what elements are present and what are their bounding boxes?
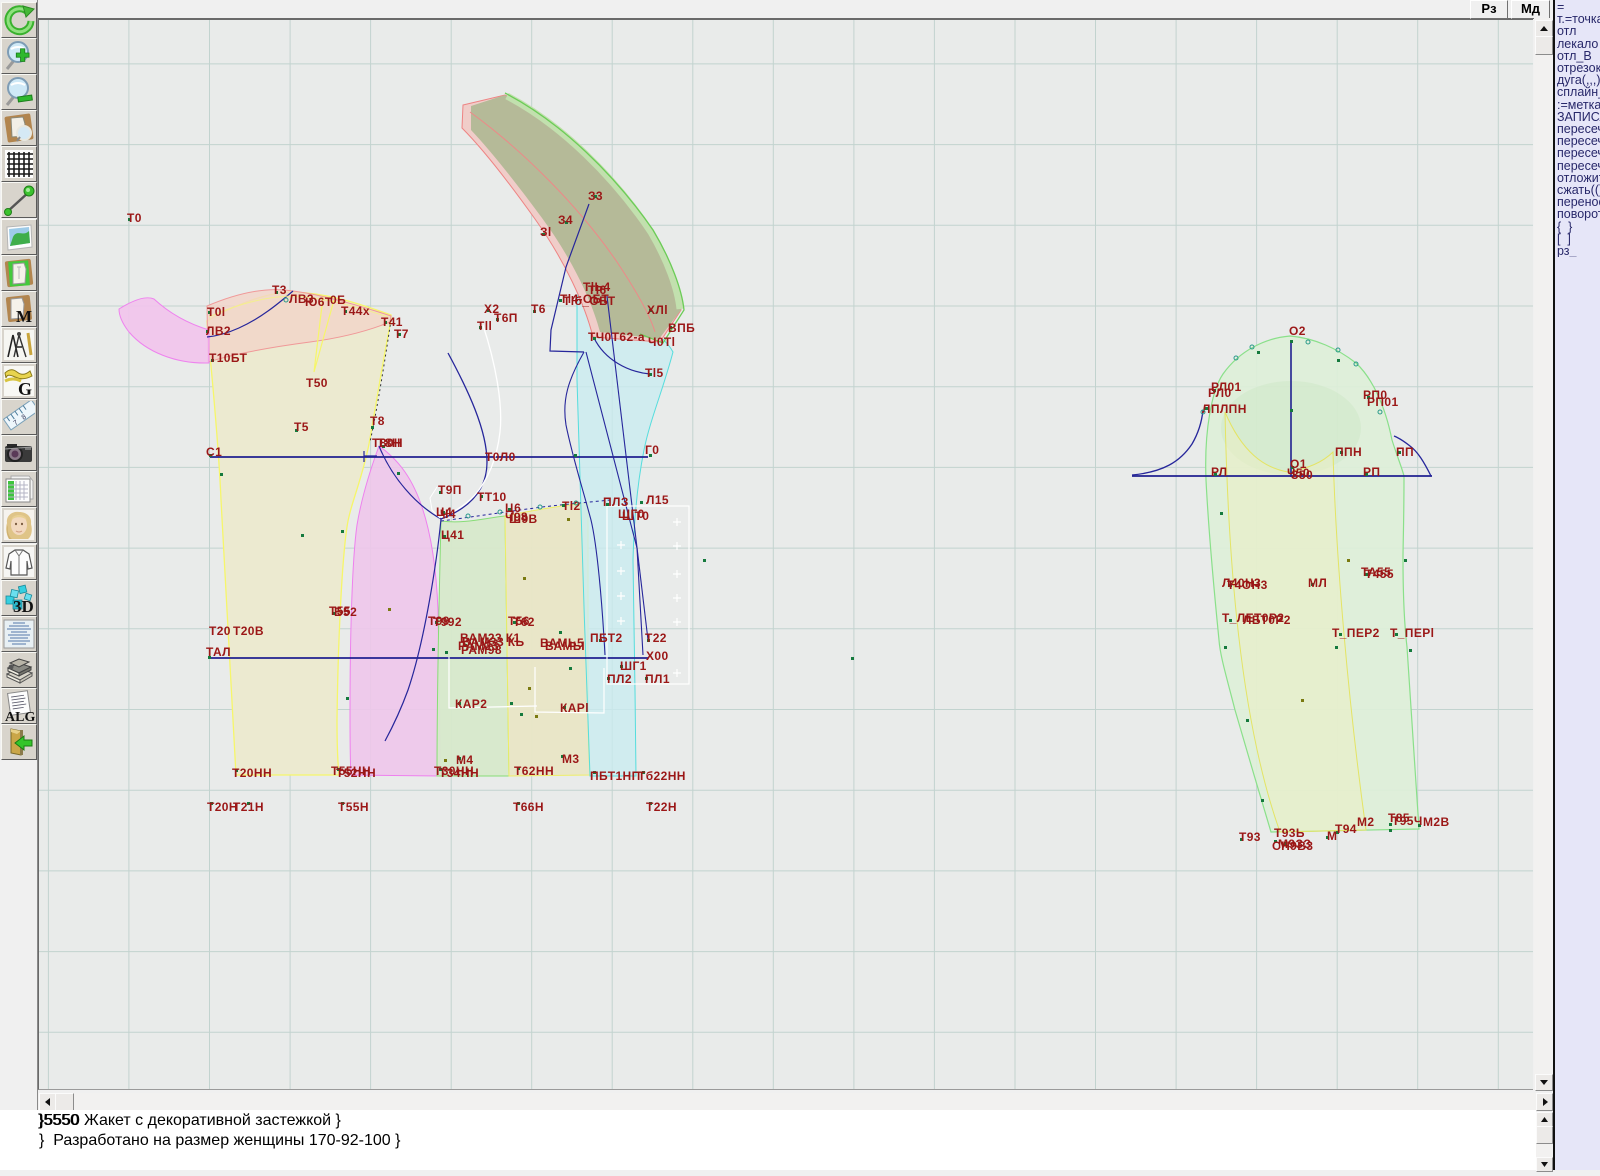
svg-text:КАРl: КАРl [560,701,589,715]
svg-text:СН9В3: СН9В3 [1272,839,1313,853]
svg-text:РЛ0: РЛ0 [1208,386,1232,400]
svg-text:Т52НН: Т52НН [336,766,376,780]
svg-text:ШТ0: ШТ0 [622,509,649,523]
svg-text:З50: З50 [1291,468,1313,482]
svg-text:З3: З3 [588,189,603,203]
svg-text:Т7: Т7 [394,327,409,341]
svg-text:ПБТ2: ПБТ2 [590,631,623,645]
svg-text:Т20НН: Т20НН [232,766,272,780]
svg-text:Б52: Б52 [334,605,357,619]
svg-text:РЛ: РЛ [1211,465,1227,479]
svg-text:Т0Л0: Т0Л0 [485,450,516,464]
svg-text:ВАМЫ: ВАМЫ [545,639,585,653]
svg-text:G: G [18,379,32,397]
svg-text:Т_ПЕР2: Т_ПЕР2 [1332,626,1380,640]
svg-text:Т20: Т20 [209,624,231,638]
svg-text:Тll: Тll [477,319,492,333]
svg-text:М2: М2 [1357,815,1374,829]
svg-text:Ч4: Ч4 [440,507,456,521]
svg-text:ЛВ2: ЛВ2 [206,324,231,338]
svg-text:Г0: Г0 [645,443,659,457]
svg-text:Т22Н: Т22Н [646,800,677,814]
svg-text:Тб22НН: Тб22НН [638,769,686,783]
svg-text:Т95Ч: Т95Ч [1392,814,1423,828]
svg-text:Т6П: Т6П [494,311,518,325]
svg-text:Т4ОН3: Т4ОН3 [1227,578,1268,592]
svg-text:Т55Н: Т55Н [338,800,369,814]
svg-text:ТЧ0Т62-а: ТЧ0Т62-а [588,330,645,344]
svg-text:Т50: Т50 [306,376,328,390]
svg-text:Т3: Т3 [272,283,287,297]
svg-text:КАР2: КАР2 [455,697,487,711]
svg-text:Т62НН: Т62НН [514,764,554,778]
svg-text:3D: 3D [13,597,34,614]
svg-text:Х00: Х00 [646,649,669,663]
svg-text:ПП: ПП [1396,445,1414,459]
svg-text:Т_ПЕРl: Т_ПЕРl [1390,626,1434,640]
svg-text:Т20В: Т20В [233,624,264,638]
svg-text:Л15: Л15 [646,493,669,507]
svg-text:Т0: Т0 [127,211,142,225]
svg-text:ПБТ1НП: ПБТ1НП [590,769,641,783]
svg-text:Т34НН: Т34НН [439,766,479,780]
svg-text:РП01: РП01 [1367,395,1399,409]
svg-text:Т8Н: Т8Н [377,436,401,450]
svg-text:З4: З4 [558,213,573,227]
svg-text:РАМ98: РАМ98 [461,643,502,657]
svg-text:ТТ10: ТТ10 [477,490,507,504]
svg-text:РП: РП [1363,465,1380,479]
svg-text:ХЛl: ХЛl [647,303,668,317]
svg-text:Т10БТ: Т10БТ [209,351,248,365]
svg-text:Т62: Т62 [513,615,535,629]
svg-text:Т455: Т455 [1365,567,1394,581]
svg-text:M: M [16,307,32,325]
svg-text:Ш9В: Ш9В [509,512,538,526]
svg-text:М3: М3 [562,752,579,766]
svg-text:Т94: Т94 [1335,822,1357,836]
svg-text:Т0l: Т0l [207,305,226,319]
svg-text:Т22: Т22 [645,631,667,645]
svg-text:МЛ: МЛ [1308,576,1327,590]
svg-text:ШГ1: ШГ1 [620,659,647,673]
svg-text:Т5: Т5 [294,420,309,434]
svg-text:Т992: Т992 [433,615,462,629]
svg-text:Ч0Тl: Ч0Тl [648,335,675,349]
svg-text:ВПБ: ВПБ [668,321,695,335]
svg-text:С1: С1 [206,445,222,459]
svg-text:ПЛ2: ПЛ2 [607,672,632,686]
svg-text:ПЛ1: ПЛ1 [645,672,670,686]
svg-text:Ю6Т: Ю6Т [305,295,333,309]
svg-text:ТАЛ: ТАЛ [206,645,231,659]
svg-text:М2В: М2В [1423,815,1450,829]
svg-text:Тl2: Тl2 [562,499,581,513]
svg-text:Т8: Т8 [370,414,385,428]
svg-text:Тlб_ОБТ: Тlб_ОБТ [563,294,616,308]
svg-text:Зl: Зl [540,225,552,239]
svg-text:О2: О2 [1289,324,1306,338]
svg-text:Т9П: Т9П [438,483,462,497]
svg-text:Тl5: Тl5 [645,366,664,380]
svg-text:Т21Н: Т21Н [233,800,264,814]
svg-text:Т6: Т6 [531,302,546,316]
svg-text:ЛБТ0Р2: ЛБТ0Р2 [1243,613,1291,627]
svg-text:ППН: ППН [1335,445,1362,459]
svg-text:Т66Н: Т66Н [513,800,544,814]
svg-text:Т44х: Т44х [341,304,370,318]
svg-text:Ц41: Ц41 [441,528,464,542]
svg-text:Т93: Т93 [1239,830,1261,844]
svg-text:ALG: ALG [5,710,35,722]
svg-text:ЛПЛПН: ЛПЛПН [1202,402,1247,416]
